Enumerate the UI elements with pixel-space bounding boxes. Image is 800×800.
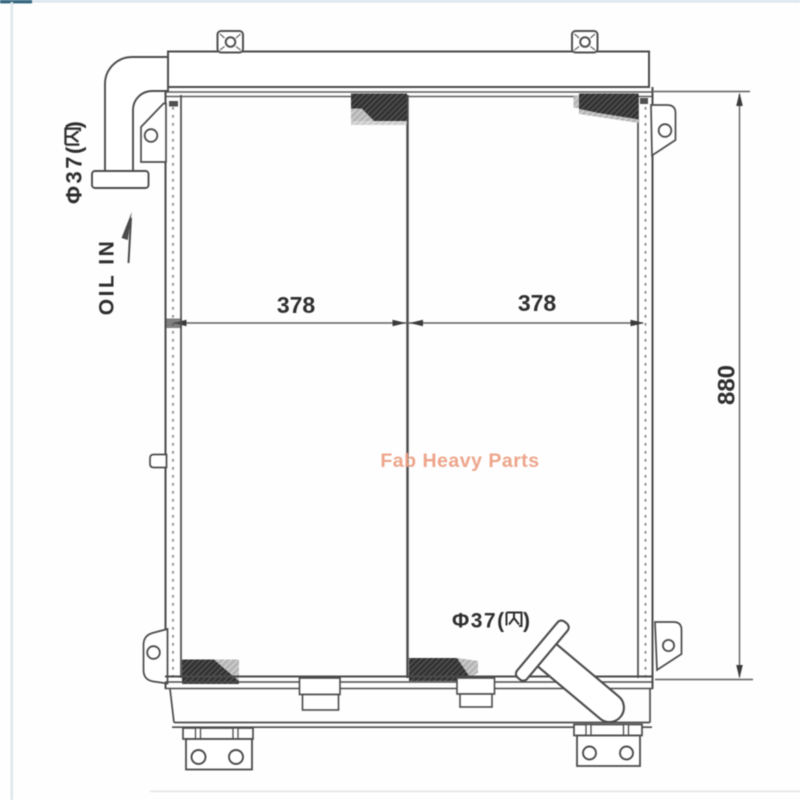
svg-text:Fab Heavy Parts: Fab Heavy Parts	[380, 450, 539, 472]
svg-text:Φ37(: Φ37(	[452, 610, 506, 633]
svg-text:378: 378	[518, 290, 557, 316]
svg-text:378: 378	[277, 292, 316, 318]
svg-text:OIL IN: OIL IN	[96, 239, 119, 315]
svg-text:880: 880	[714, 365, 741, 405]
svg-text:): )	[523, 610, 530, 633]
svg-text:Φ37(: Φ37(	[62, 144, 87, 204]
svg-text:): )	[62, 121, 87, 128]
